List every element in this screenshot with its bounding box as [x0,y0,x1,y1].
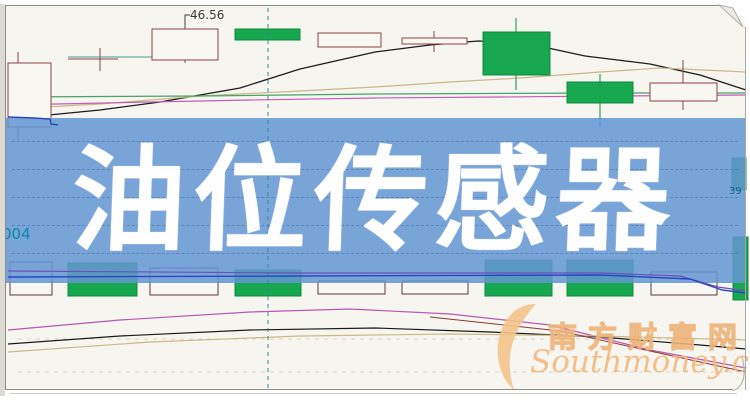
page-curl [733,357,744,391]
left-page-edge [0,4,5,396]
page-frame-svg [0,0,750,400]
stock-chart-thumbnail: 油位传感器 46.56 004 39 南方财富网 Southmoney.com [0,0,750,400]
